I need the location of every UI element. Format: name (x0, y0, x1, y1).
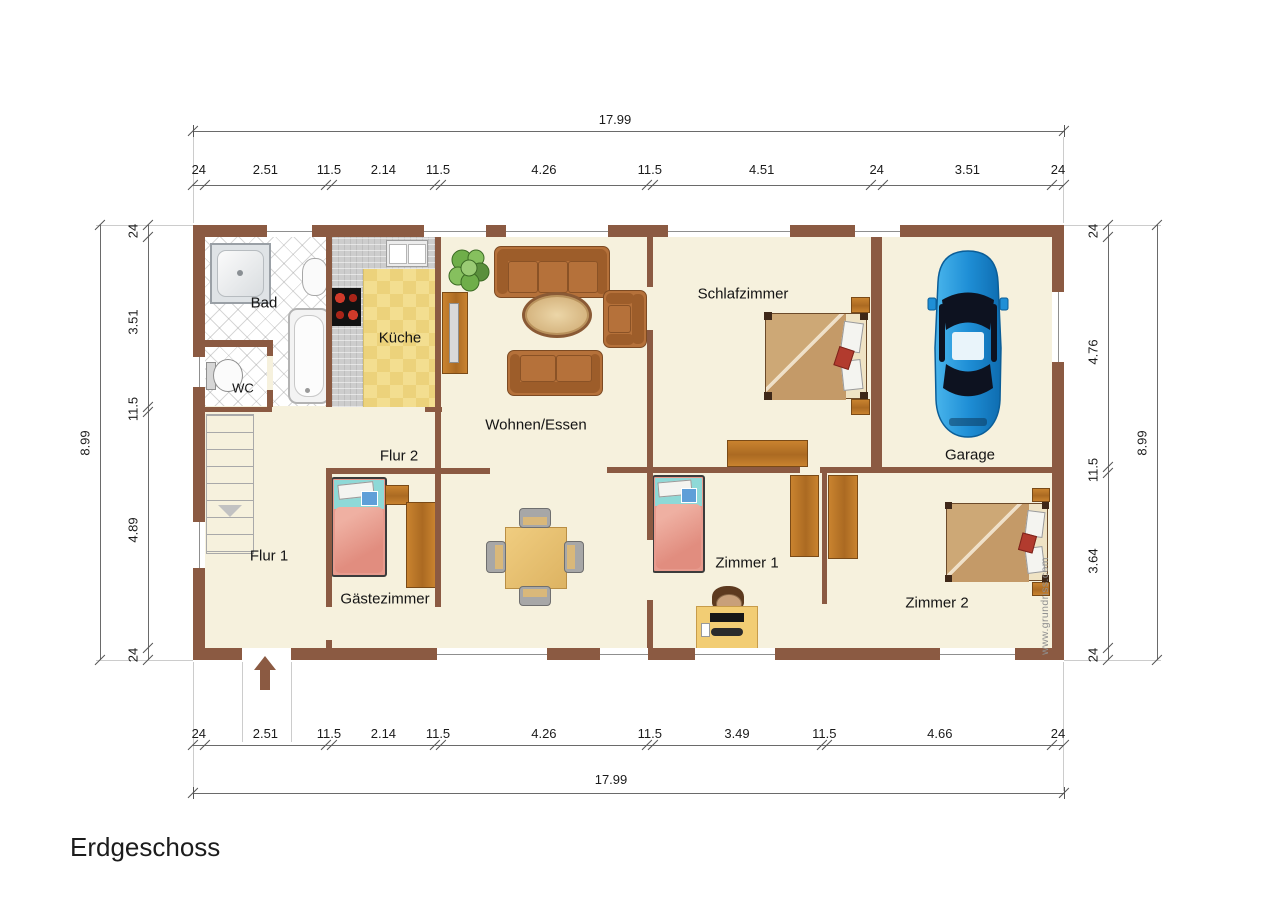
wall-flur2-top-left (205, 407, 272, 413)
wall-wc-right-post (267, 340, 273, 356)
dim-bottom-10: 24 (1051, 726, 1065, 741)
bathtub-drain (305, 388, 310, 393)
door-middle-wall (800, 467, 820, 473)
dim-top-0: 24 (192, 162, 206, 177)
desk-keyboard (711, 628, 743, 636)
window-garage-right (1052, 292, 1064, 362)
bed-post (945, 502, 952, 509)
bathtub (288, 308, 330, 404)
door-schlafzimmer (647, 287, 653, 330)
dim-left-3: 4.89 (126, 518, 141, 543)
dining-chair-east (564, 541, 584, 573)
dim-right-1: 4.76 (1086, 339, 1101, 364)
window-essen-1 (437, 648, 547, 660)
sofa-cushion (508, 261, 538, 293)
room-label-zimmer1: Zimmer 1 (715, 555, 778, 572)
window-zimmer1 (695, 648, 775, 660)
sideboard (442, 292, 468, 374)
extension-line (1064, 660, 1161, 661)
dim-bottom-4: 11.5 (426, 726, 450, 741)
wall-middle-horizontal (647, 467, 1052, 473)
entrance-arrow-head (254, 656, 276, 670)
dim-top-2: 11.5 (317, 162, 341, 177)
extension-line (96, 225, 193, 226)
sideboard-item (449, 303, 459, 363)
desk-note (701, 623, 710, 637)
shower-drain (237, 270, 243, 276)
sofa-cushion (538, 261, 568, 293)
wardrobe-zimmer1 (790, 475, 819, 557)
sofa-cushion (568, 261, 598, 293)
plant (446, 246, 492, 294)
wall-kueche-wohnen (435, 237, 441, 607)
wall-gaestezimmer-left-stub (326, 640, 332, 648)
door-bad (272, 407, 325, 413)
dim-top-8: 24 (869, 162, 883, 177)
dim-top-total: 17.99 (599, 112, 632, 127)
bed-post (764, 392, 772, 400)
bed-cushion (361, 491, 378, 506)
dim-bottom-total: 17.99 (595, 772, 628, 787)
sofa-cushion (520, 355, 556, 382)
chair-pad (523, 589, 547, 597)
dim-stub (1064, 787, 1065, 799)
dim-line-right-total (1157, 225, 1158, 660)
armchair-back (632, 294, 644, 344)
bed-blanket (947, 504, 1029, 582)
car (927, 248, 1009, 440)
extension-line (242, 662, 243, 742)
wall-schlafzimmer-garage (871, 237, 883, 473)
room-label-wc: WC (232, 381, 254, 396)
sofa-three-seat (494, 246, 610, 298)
dim-top-3: 2.14 (371, 162, 396, 177)
dim-left-total: 8.99 (78, 430, 93, 455)
dim-top-6: 11.5 (638, 162, 662, 177)
window-wc-left (193, 357, 205, 387)
double-bed-zimmer2 (946, 503, 1048, 581)
sofa-cushion (556, 355, 592, 382)
dim-stub (193, 787, 194, 799)
bed-post (860, 312, 868, 320)
window-zimmer2 (940, 648, 1015, 660)
bed-post (945, 575, 952, 582)
page-title: Erdgeschoss (70, 832, 220, 863)
extension-line (1063, 137, 1064, 223)
extension-line (291, 662, 292, 742)
wall-wc-right (267, 390, 273, 407)
armchair (603, 290, 647, 348)
stove (332, 288, 361, 326)
wall-zimmer1-zimmer2 (822, 473, 828, 604)
washbasin (302, 258, 328, 296)
staircase (206, 414, 254, 554)
dim-bottom-6: 11.5 (638, 726, 662, 741)
dim-bottom-1: 2.51 (253, 726, 278, 741)
dim-line-right-segments (1108, 225, 1109, 660)
double-bed-schlafzimmer (765, 313, 867, 399)
dim-top-1: 2.51 (253, 162, 278, 177)
bathtub-inner (294, 315, 324, 397)
armchair-armrest-top (606, 293, 634, 304)
extension-line (193, 137, 194, 223)
wall-gaestezimmer-left (326, 468, 332, 607)
dim-left-1: 3.51 (126, 309, 141, 334)
single-bed-gaestezimmer (331, 477, 387, 577)
dim-bottom-5: 4.26 (531, 726, 556, 741)
dim-bottom-2: 11.5 (317, 726, 341, 741)
dim-stub (1064, 125, 1065, 137)
dim-top-9: 3.51 (955, 162, 980, 177)
dim-top-4: 11.5 (426, 162, 450, 177)
wall-gaestezimmer-top (326, 468, 490, 474)
room-label-bad: Bad (251, 295, 278, 312)
exterior-wall-top (193, 225, 1064, 237)
door-wc (267, 356, 273, 390)
dim-top-5: 4.26 (531, 162, 556, 177)
dining-chair-west (486, 541, 506, 573)
door-zimmer1 (647, 540, 653, 600)
bed-blanket (766, 314, 846, 400)
exterior-wall-left (193, 225, 205, 660)
kitchen-sink (386, 240, 428, 267)
desk (696, 606, 758, 650)
dresser-schlafzimmer (727, 440, 808, 467)
dim-bottom-7: 3.49 (724, 726, 749, 741)
chair-pad (567, 545, 575, 569)
single-bed-zimmer1 (652, 475, 705, 573)
entrance-arrow-stem (260, 670, 270, 690)
dim-line-bottom-total (193, 793, 1064, 794)
nightstand (851, 297, 870, 313)
desk-monitor (710, 613, 744, 622)
room-label-wohnen: Wohnen/Essen (485, 417, 586, 434)
sink-bowl-right (408, 244, 426, 264)
bed-blanket (656, 504, 701, 569)
bed-post (1042, 502, 1049, 509)
dim-top-10: 24 (1051, 162, 1065, 177)
chair-pad (495, 545, 503, 569)
exterior-wall-right (1052, 225, 1064, 660)
door-essen (435, 607, 441, 648)
bed-blanket (335, 507, 383, 573)
dim-bottom-0: 24 (192, 726, 206, 741)
room-label-schlafzimmer: Schlafzimmer (698, 286, 789, 303)
dim-bottom-9: 4.66 (927, 726, 952, 741)
nightstand (1032, 488, 1050, 502)
window-essen-2 (600, 648, 648, 660)
watermark: www.grundriss.com (1039, 557, 1051, 655)
chair-pad (523, 517, 547, 525)
nightstand (851, 399, 870, 415)
window-bad (267, 225, 312, 237)
dim-right-4: 24 (1086, 647, 1101, 661)
dim-left-2: 11.5 (126, 397, 141, 421)
dining-table (505, 527, 567, 589)
dim-right-3: 3.64 (1086, 548, 1101, 573)
dim-bottom-3: 2.14 (371, 726, 396, 741)
sink-bowl-left (389, 244, 407, 264)
dim-top-7: 4.51 (749, 162, 774, 177)
room-label-zimmer2: Zimmer 2 (905, 595, 968, 612)
wall-wc-top (205, 340, 267, 347)
wardrobe-zimmer2 (828, 475, 858, 559)
dim-line-left-segments (148, 225, 149, 660)
dim-left-0: 24 (126, 224, 141, 238)
stairs-direction-arrow (218, 505, 242, 517)
coffee-table-oval (522, 292, 592, 338)
sofa-two-seat (507, 350, 603, 396)
armchair-armrest-bottom (606, 334, 634, 345)
window-flur1-left (193, 522, 205, 568)
room-label-gaestezimmer: Gästezimmer (340, 591, 429, 608)
room-label-garage: Garage (945, 447, 995, 464)
dim-bottom-8: 11.5 (812, 726, 836, 741)
floorplan-canvas: Bad WC Küche Wohnen/Essen Schlafzimmer G… (0, 0, 1279, 917)
dim-right-2: 11.5 (1086, 458, 1101, 482)
dining-chair-north (519, 508, 551, 528)
room-label-kueche: Küche (379, 330, 422, 347)
dim-stub (193, 125, 194, 137)
wardrobe-gaestezimmer (406, 502, 436, 588)
window-wohnen-top (506, 225, 608, 237)
wall-wohnen-stub-right (607, 467, 647, 473)
wall-bad-kueche (326, 237, 332, 407)
extension-line (1064, 225, 1161, 226)
window-garage-top (855, 225, 900, 237)
dim-right-total: 8.99 (1135, 430, 1150, 455)
bed-post (764, 312, 772, 320)
door-gaestezimmer (326, 607, 332, 640)
window-kueche (424, 225, 486, 237)
extension-line (96, 660, 193, 661)
sofa-back (511, 382, 599, 393)
window-schlafzimmer (668, 225, 790, 237)
dim-right-0: 24 (1086, 224, 1101, 238)
dining-chair-south (519, 586, 551, 606)
sofa-back (498, 249, 606, 261)
sofa-armrest-left (497, 250, 508, 294)
dim-line-left-total (100, 225, 101, 660)
bed-cushion (681, 488, 697, 503)
dim-line-top-total (193, 131, 1064, 132)
armchair-cushion (608, 305, 631, 333)
room-label-flur1: Flur 1 (250, 548, 288, 565)
sofa-armrest-left (510, 354, 520, 392)
dim-left-4: 24 (126, 647, 141, 661)
room-label-flur2: Flur 2 (380, 448, 418, 465)
